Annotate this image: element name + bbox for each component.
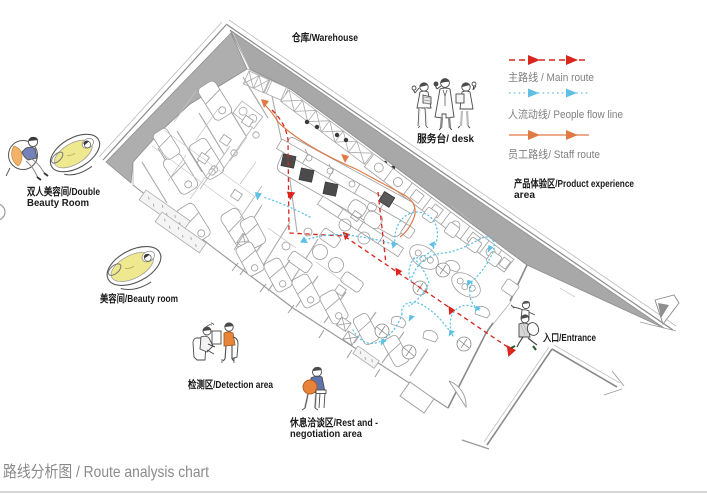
svg-text:路线分析图 / Route analysis chart: 路线分析图 / Route analysis chart — [3, 463, 209, 481]
svg-text:人流动线/ People flow line: 人流动线/ People flow line — [508, 107, 623, 121]
svg-text:员工路线/ Staff route: 员工路线/ Staff route — [508, 147, 600, 161]
svg-text:入口/Entrance: 入口/Entrance — [543, 332, 596, 344]
svg-text:negotiation area: negotiation area — [290, 428, 362, 440]
svg-text:主路线 / Main route: 主路线 / Main route — [508, 70, 594, 84]
svg-text:仓库/Warehouse: 仓库/Warehouse — [291, 31, 358, 44]
svg-text:美容间/Beauty room: 美容间/Beauty room — [100, 292, 178, 305]
svg-text:服务台/ desk: 服务台/ desk — [417, 132, 474, 145]
svg-text:Beauty Room: Beauty Room — [27, 197, 89, 209]
svg-text:检测区/Detection area: 检测区/Detection area — [188, 378, 273, 391]
svg-text:area: area — [514, 189, 535, 201]
